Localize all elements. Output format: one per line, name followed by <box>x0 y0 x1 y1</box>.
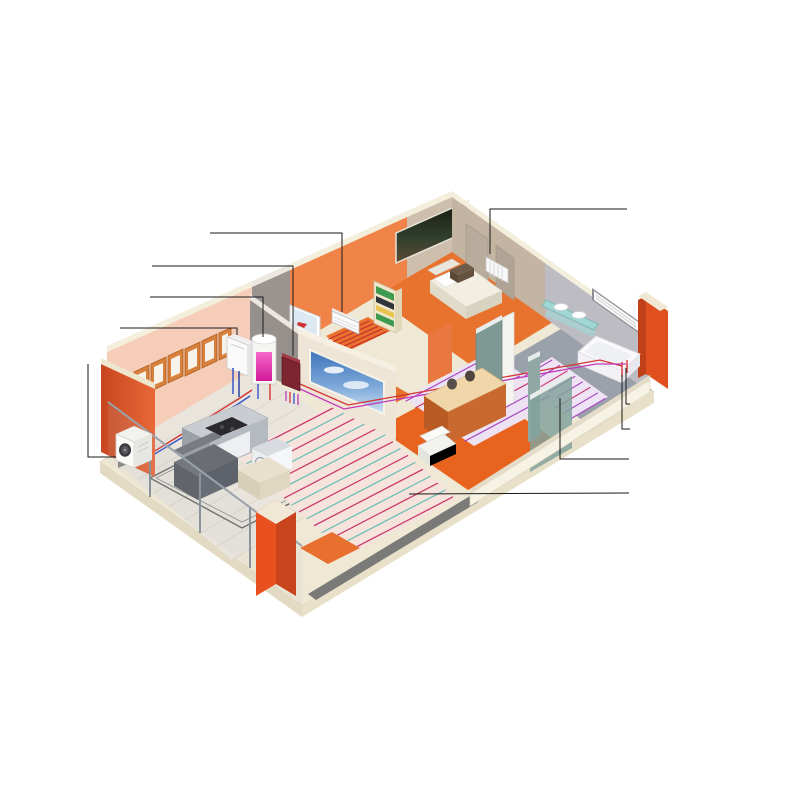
vase <box>465 371 475 382</box>
isometric-house-illustration <box>0 0 800 800</box>
vase <box>447 379 457 390</box>
outdoor-unit <box>116 426 152 468</box>
heating-system-diagram <box>0 0 800 800</box>
brick-pillar-right <box>638 292 668 389</box>
brick-pillar-front <box>256 500 296 596</box>
